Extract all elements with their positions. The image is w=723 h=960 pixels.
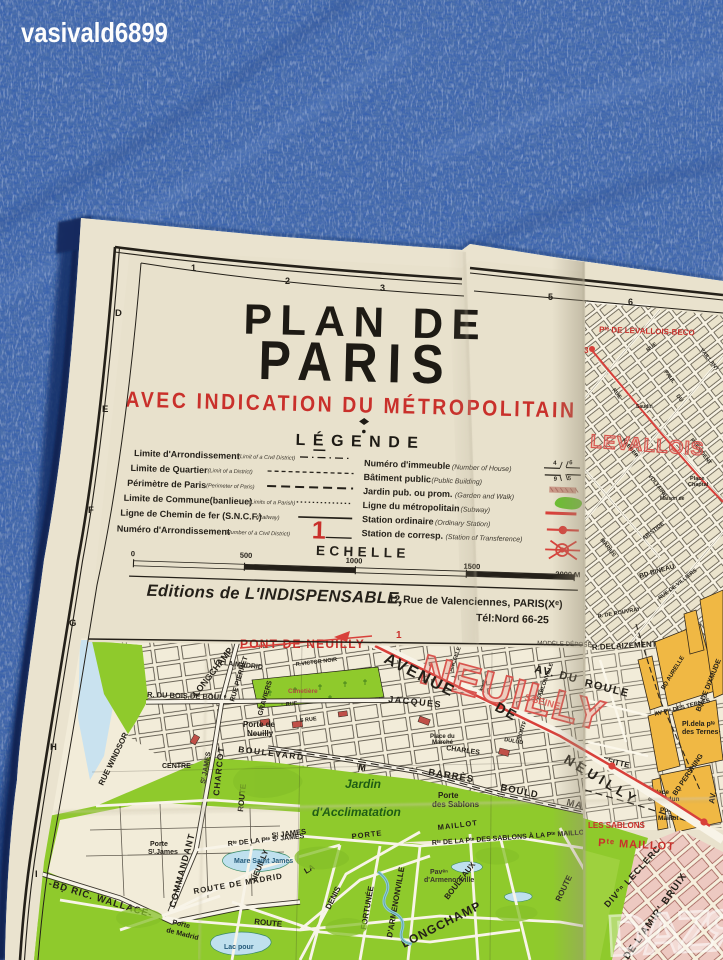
svg-text:PARIS: PARIS <box>258 329 455 395</box>
svg-text:(Railway): (Railway) <box>256 515 280 522</box>
svg-text:1: 1 <box>191 263 196 273</box>
svg-text:Sᵗ.James: Sᵗ.James <box>148 849 178 856</box>
svg-text:F: F <box>88 505 94 516</box>
svg-text:Tél:Nord 66-25: Tél:Nord 66-25 <box>476 612 549 626</box>
svg-text:d'Armenonville: d'Armenonville <box>424 877 474 884</box>
svg-text:I: I <box>35 869 38 880</box>
svg-text:Porte: Porte <box>438 791 459 800</box>
svg-text:CENTRE: CENTRE <box>162 763 191 770</box>
svg-text:vasivald6899: vasivald6899 <box>21 16 168 48</box>
svg-text:G: G <box>69 618 76 629</box>
svg-text:DAZЯR: DAZЯR <box>605 895 723 960</box>
svg-text:RUE: RUE <box>286 701 299 708</box>
svg-text:ECHELLE: ECHELLE <box>316 543 410 561</box>
svg-text:Pavᵉⁿ: Pavᵉⁿ <box>430 869 448 876</box>
svg-text:Pl.dela pᵗᵉ: Pl.dela pᵗᵉ <box>682 721 715 728</box>
svg-text:6: 6 <box>628 297 633 307</box>
svg-text:E: E <box>102 404 108 415</box>
svg-text:Porte de: Porte de <box>243 720 276 729</box>
svg-text:Lac pour: Lac pour <box>224 944 254 951</box>
svg-text:Chaptal: Chaptal <box>688 482 709 488</box>
svg-text:500: 500 <box>240 551 253 560</box>
svg-text:2: 2 <box>285 276 290 286</box>
svg-text:Porte: Porte <box>150 841 168 848</box>
svg-text:0: 0 <box>131 549 135 558</box>
svg-text:Maison de: Maison de <box>660 496 685 502</box>
svg-text:H: H <box>50 742 57 753</box>
svg-text:1: 1 <box>396 630 402 641</box>
svg-text:D: D <box>115 308 122 319</box>
svg-text:Cimetière: Cimetière <box>288 688 318 695</box>
svg-text:Mare Saint James: Mare Saint James <box>234 858 293 865</box>
svg-text:1: 1 <box>311 516 326 544</box>
svg-text:M: M <box>358 762 367 773</box>
svg-text:Neuilly: Neuilly <box>247 729 274 738</box>
svg-text:Saudin: Saudin <box>636 404 653 410</box>
svg-text:Maillot: Maillot <box>658 815 679 822</box>
svg-text:3: 3 <box>380 283 385 293</box>
svg-text:Jardin: Jardin <box>345 777 381 791</box>
svg-text:LES SABLONS: LES SABLONS <box>588 821 646 830</box>
svg-text:1000: 1000 <box>346 556 363 566</box>
svg-text:des Ternes⋅: des Ternes⋅ <box>682 729 721 736</box>
